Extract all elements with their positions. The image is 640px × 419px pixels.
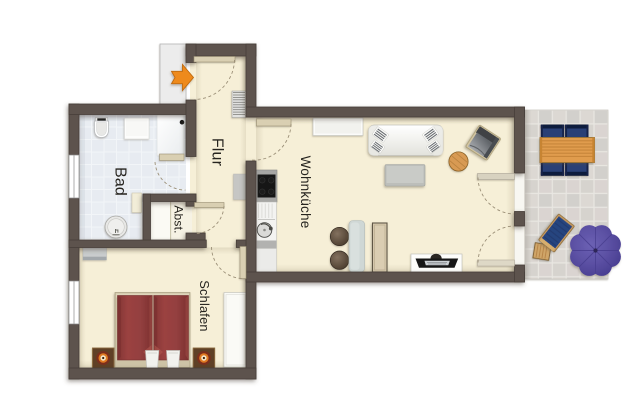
svg-text:Abst.: Abst. xyxy=(172,205,186,233)
svg-text:Bad: Bad xyxy=(112,167,129,196)
svg-text:Schlafen: Schlafen xyxy=(197,280,212,331)
svg-text:Flur: Flur xyxy=(209,138,226,167)
svg-text:Wohnküche: Wohnküche xyxy=(298,156,313,229)
